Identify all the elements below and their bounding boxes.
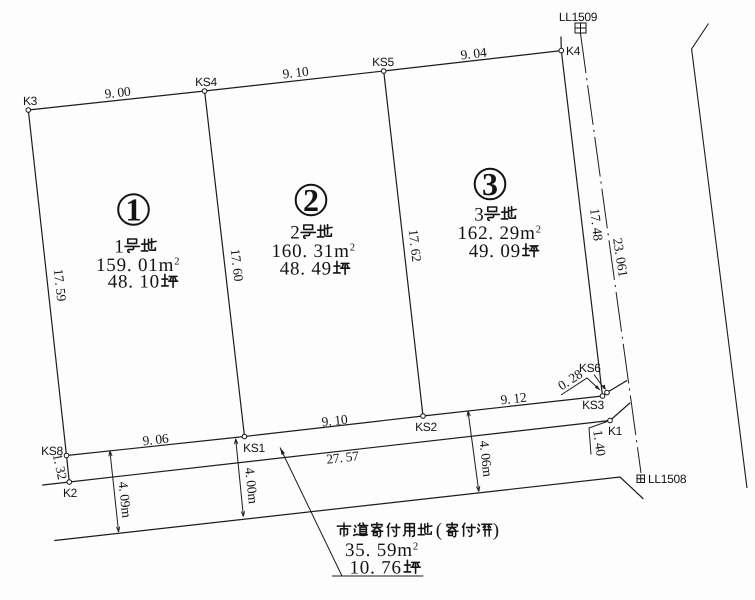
svg-text:48. 10: 48. 10	[108, 272, 160, 293]
svg-text:9. 12: 9. 12	[500, 390, 528, 408]
svg-text:9. 00: 9. 00	[104, 84, 132, 102]
svg-text:9. 10: 9. 10	[321, 412, 349, 430]
svg-text:(: (	[436, 520, 443, 541]
svg-text:48. 49: 48. 49	[280, 259, 332, 280]
svg-text:KS3: KS3	[582, 398, 604, 412]
svg-text:49. 09: 49. 09	[469, 241, 521, 262]
svg-text:LL1509: LL1509	[559, 10, 598, 24]
svg-text:9. 06: 9. 06	[142, 431, 170, 449]
svg-text:9. 04: 9. 04	[460, 45, 488, 63]
svg-text:K2: K2	[63, 486, 78, 500]
svg-text:): )	[493, 520, 500, 541]
svg-text:KS4: KS4	[195, 75, 217, 89]
svg-text:9. 10: 9. 10	[282, 64, 310, 82]
svg-text:KS5: KS5	[372, 55, 394, 69]
svg-text:10. 76: 10. 76	[350, 558, 402, 579]
svg-text:3: 3	[482, 166, 498, 202]
svg-text:2: 2	[303, 182, 319, 218]
svg-text:K1: K1	[608, 424, 623, 438]
svg-text:KS6: KS6	[579, 361, 601, 375]
svg-text:K3: K3	[23, 94, 38, 108]
svg-text:KS1: KS1	[243, 441, 265, 455]
svg-text:LL1508: LL1508	[648, 472, 687, 486]
svg-text:1: 1	[126, 192, 142, 228]
svg-text:K4: K4	[566, 44, 581, 58]
svg-text:KS2: KS2	[415, 420, 437, 434]
